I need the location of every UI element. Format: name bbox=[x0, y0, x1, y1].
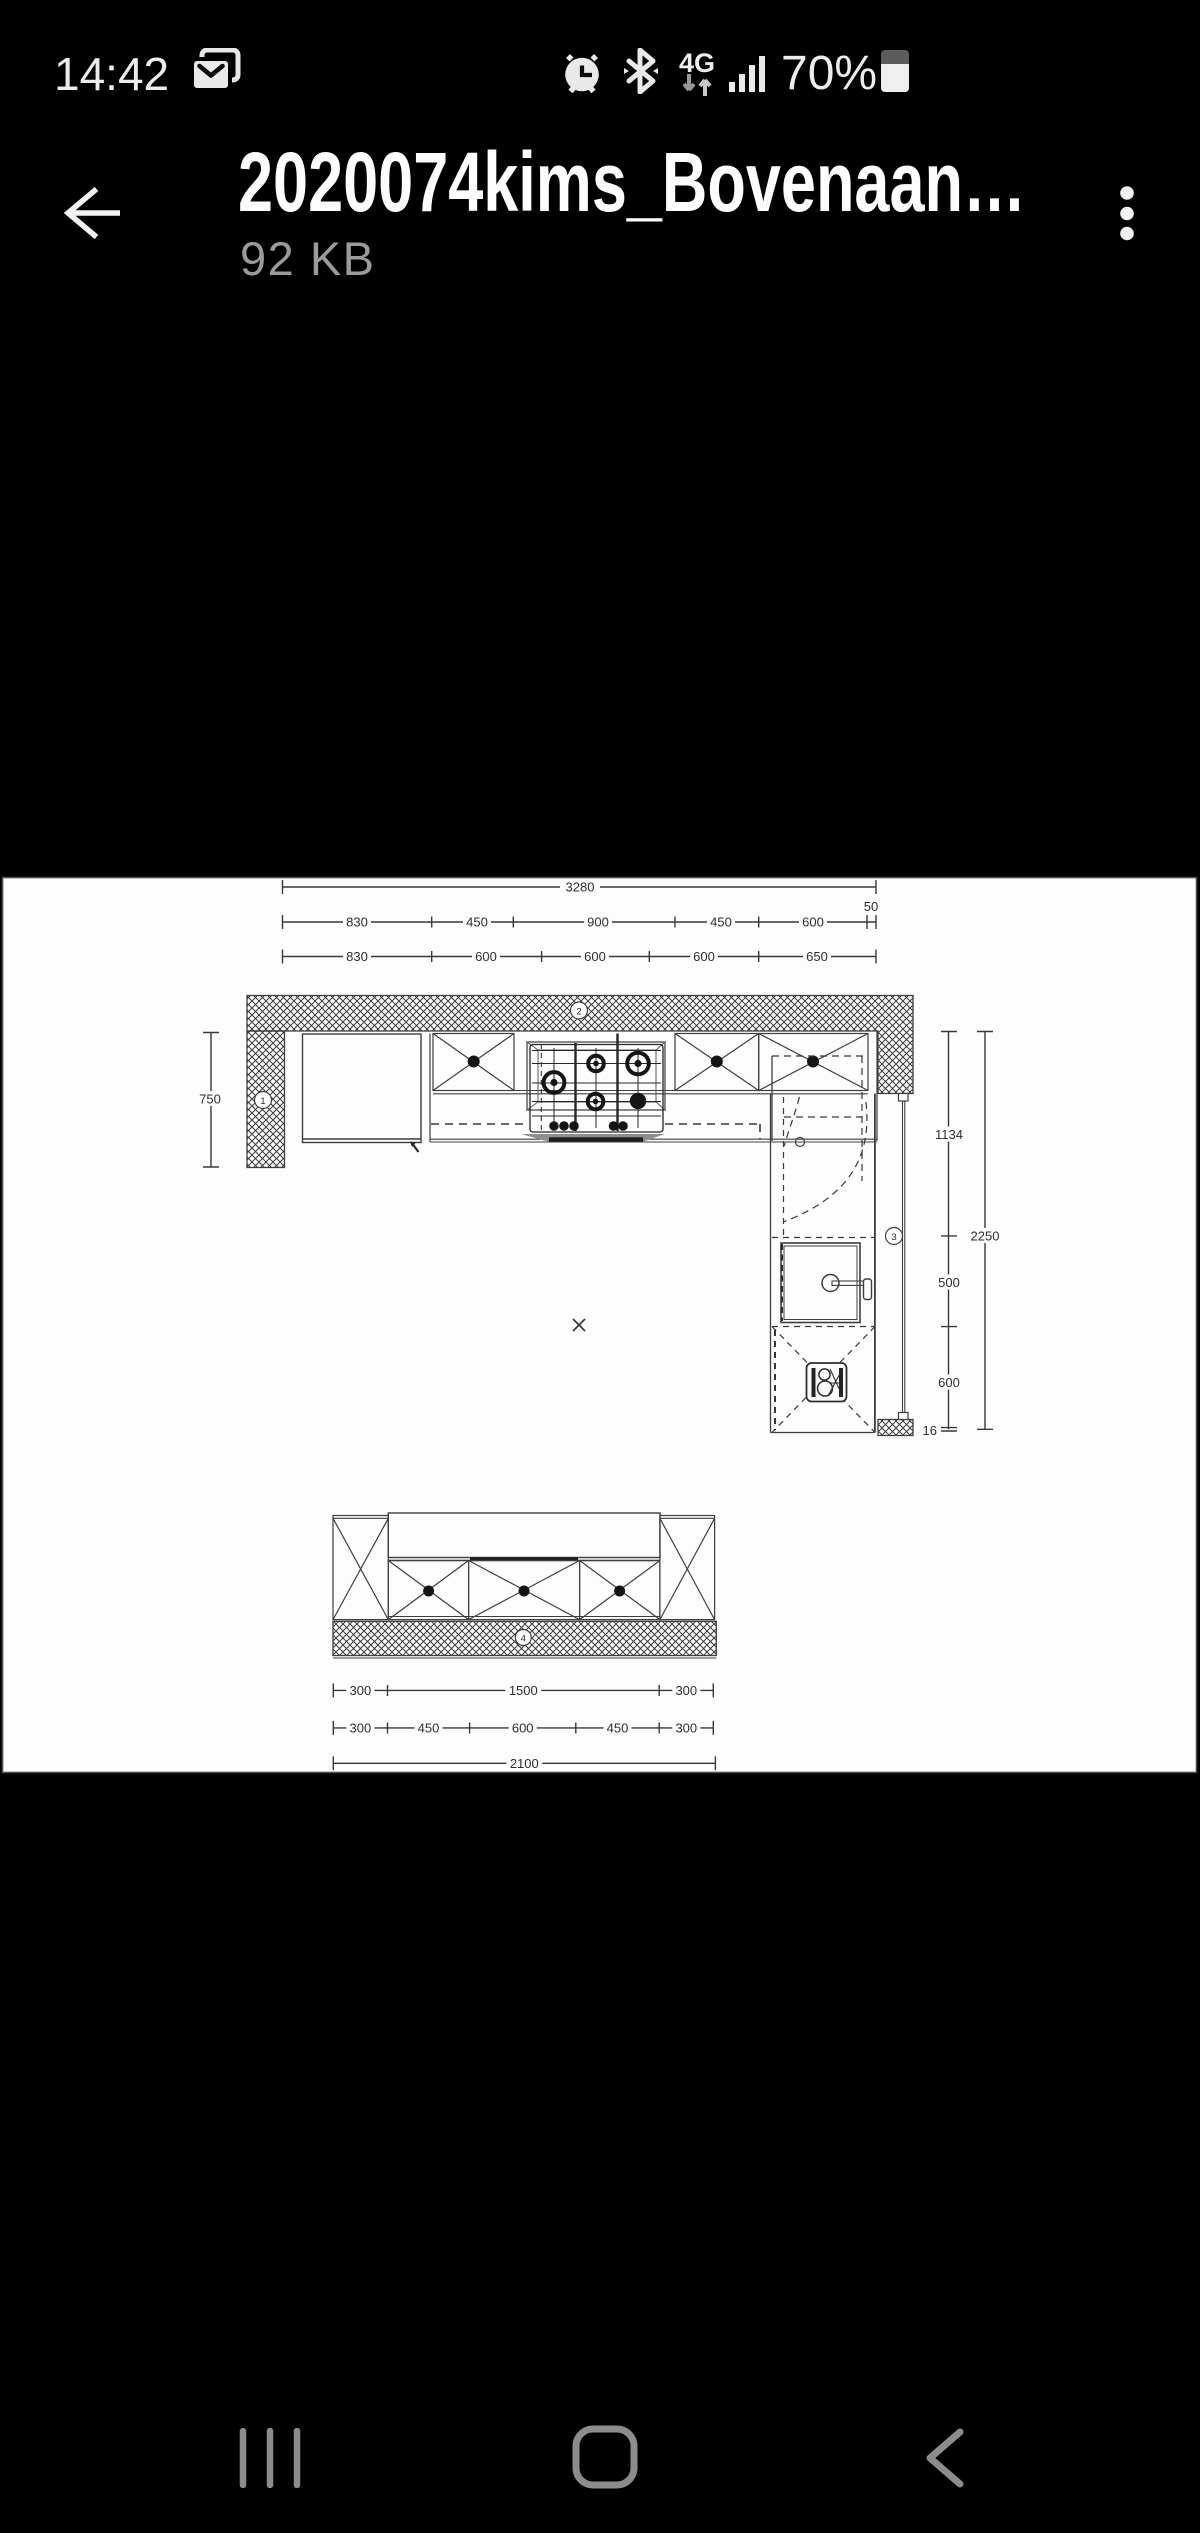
svg-text:600: 600 bbox=[584, 949, 606, 964]
svg-text:300: 300 bbox=[675, 1721, 697, 1736]
svg-text:4: 4 bbox=[521, 1634, 526, 1645]
svg-text:50: 50 bbox=[864, 899, 878, 914]
svg-text:1134: 1134 bbox=[935, 1127, 963, 1142]
svg-text:600: 600 bbox=[938, 1375, 960, 1390]
svg-text:500: 500 bbox=[938, 1275, 960, 1290]
svg-text:600: 600 bbox=[802, 915, 824, 930]
svg-text:16: 16 bbox=[923, 1423, 937, 1438]
svg-text:450: 450 bbox=[418, 1721, 440, 1736]
svg-text:830: 830 bbox=[346, 915, 368, 930]
svg-text:750: 750 bbox=[199, 1092, 221, 1107]
svg-text:2: 2 bbox=[576, 1007, 581, 1018]
svg-text:650: 650 bbox=[806, 949, 828, 964]
svg-text:300: 300 bbox=[675, 1683, 697, 1698]
svg-text:300: 300 bbox=[350, 1683, 372, 1698]
svg-text:1500: 1500 bbox=[509, 1683, 538, 1698]
svg-text:1: 1 bbox=[260, 1096, 265, 1107]
svg-text:300: 300 bbox=[350, 1721, 372, 1736]
svg-text:600: 600 bbox=[475, 949, 497, 964]
svg-text:450: 450 bbox=[466, 915, 488, 930]
svg-text:600: 600 bbox=[512, 1721, 534, 1736]
svg-text:450: 450 bbox=[710, 915, 732, 930]
svg-text:830: 830 bbox=[346, 949, 368, 964]
svg-text:450: 450 bbox=[607, 1721, 629, 1736]
svg-text:3: 3 bbox=[891, 1232, 896, 1243]
svg-text:600: 600 bbox=[693, 949, 715, 964]
svg-text:2100: 2100 bbox=[510, 1756, 539, 1771]
svg-text:900: 900 bbox=[587, 915, 609, 930]
svg-text:2250: 2250 bbox=[971, 1229, 1000, 1244]
svg-text:3280: 3280 bbox=[566, 880, 595, 895]
